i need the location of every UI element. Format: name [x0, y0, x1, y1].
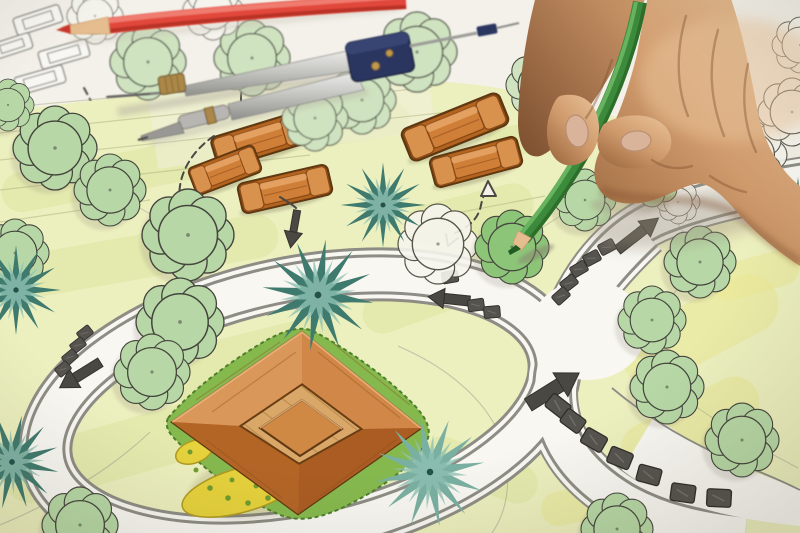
vignette-overlay	[0, 0, 800, 533]
landscape-plan-photo	[0, 0, 800, 533]
photo-canvas	[0, 0, 800, 533]
